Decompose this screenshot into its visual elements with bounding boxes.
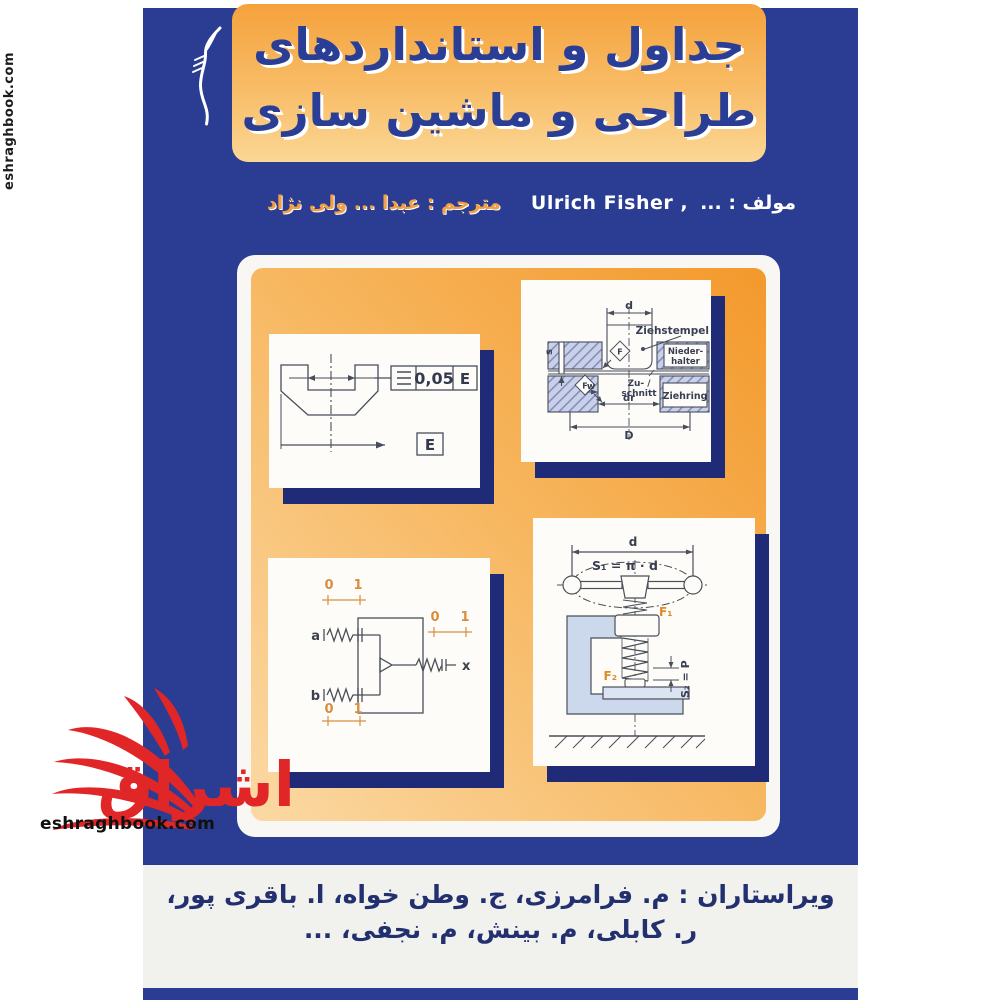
die-blank-label-1: Zu- / [627, 379, 651, 389]
tolerance-diagram: 0,05 E E [269, 334, 480, 488]
die-dim-D: D [624, 429, 633, 442]
publisher-swoosh-icon [183, 24, 235, 130]
scale-b-one: 1 [353, 702, 362, 717]
watermark-site-vertical: eshraghbook.com [2, 52, 17, 190]
scale-a-one: 1 [353, 578, 362, 593]
spring-logic-diagram: 0 1 0 1 0 1 a b x [268, 558, 490, 772]
tolerance-value: 0,05 [414, 369, 453, 388]
illustration-frame: 0,05 E E [237, 255, 780, 837]
editors-line-1: ویراستاران : م. فرامرزی، ج. وطن خواه، ا.… [143, 877, 858, 912]
scale-x-zero: 0 [430, 610, 439, 625]
watermark-site-text: eshraghbook.com [40, 814, 215, 834]
logo-calligraphy: اشراق [98, 748, 295, 821]
drawing-die-diagram: d Ziehstempel Nieder- halter Zu- / schni… [521, 280, 711, 462]
clamp-f1-label: F₁ [659, 605, 672, 619]
title-line-1: جداول و استانداردهای [232, 12, 766, 78]
die-force-lower: F [582, 382, 587, 391]
input-a-label: a [311, 629, 320, 644]
output-x-label: x [462, 659, 471, 674]
book-cover: جداول و استانداردهای طراحی و ماشین سازی … [143, 8, 858, 1000]
die-force-upper: F [617, 348, 622, 357]
title-line-2: طراحی و ماشین سازی [232, 78, 766, 144]
editors-line-2: ر. کابلی، م. بینش، م. نجفی، ... [143, 912, 858, 947]
die-holder-label-1: Nieder- [668, 347, 704, 357]
datum-box-label: E [425, 436, 435, 454]
author-name: Ulrich Fisher , [531, 192, 688, 214]
clamp-dim-d: d [629, 535, 638, 549]
book-cover-photo: جداول و استانداردهای طراحی و ماشین سازی … [0, 0, 1000, 1000]
die-dim-d: d [625, 299, 633, 312]
scale-b-zero: 0 [324, 702, 333, 717]
die-dim-w: w [587, 382, 595, 392]
tolerance-datum: E [460, 370, 470, 388]
scale-x-one: 1 [460, 610, 469, 625]
die-dim-dr: dr [623, 393, 635, 404]
author-line: مولف : ... Ulrich Fisher , مترجم : عبدا … [267, 192, 796, 214]
clamp-f2-label: F₂ [604, 669, 617, 683]
book-title: جداول و استانداردهای طراحی و ماشین سازی [232, 12, 766, 144]
translator-credit: مترجم : عبدا ... ولی نژاد [267, 192, 501, 214]
clamp-s2-label: S₂ = P [679, 660, 692, 698]
die-ring-label: Ziehring [663, 391, 708, 402]
input-b-label: b [311, 689, 320, 704]
scale-a-zero: 0 [324, 578, 333, 593]
screw-clamp-diagram: d S₁ = π · d F₁ F₂ S₂ = P [533, 518, 755, 766]
die-punch-label: Ziehstempel [636, 325, 709, 337]
title-box: جداول و استانداردهای طراحی و ماشین سازی [232, 4, 766, 162]
die-dim-s: s [544, 349, 555, 355]
author-label: مولف : ... [700, 192, 796, 214]
editors-strip: ویراستاران : م. فرامرزی، ج. وطن خواه، ا.… [143, 865, 858, 988]
clamp-s1-label: S₁ = π · d [592, 558, 658, 573]
die-holder-label-2: halter [671, 357, 701, 367]
